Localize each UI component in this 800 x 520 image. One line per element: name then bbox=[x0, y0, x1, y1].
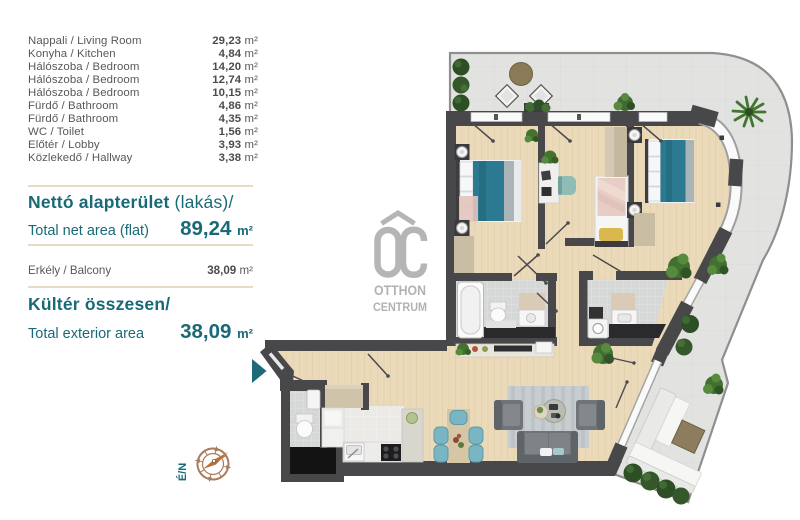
svg-text:OTTHON: OTTHON bbox=[374, 283, 426, 298]
svg-text:CENTRUM: CENTRUM bbox=[373, 302, 427, 314]
